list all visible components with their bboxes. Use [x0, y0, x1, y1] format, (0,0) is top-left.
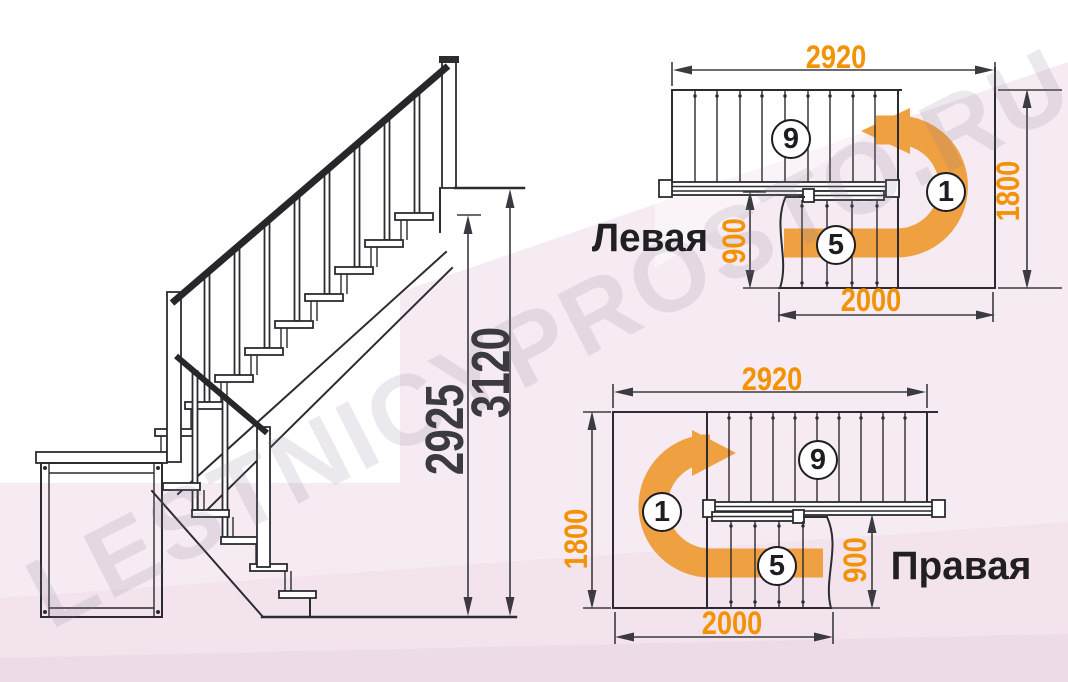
plan-right-badge-upper-flight: 9 [798, 440, 838, 480]
plan-right-dim-lower-width: 900 [839, 537, 871, 582]
plan-left-dim-lower-width: 900 [718, 218, 750, 263]
staircase-diagram: LESTNICYPROSTO.RU 2925 3120 Левая 2920 1… [0, 0, 1068, 682]
plan-left-dim-lower-length: 2000 [841, 284, 902, 316]
plan-right-badge-lower-flight: 5 [757, 546, 797, 586]
dim-label-3120: 3120 [464, 328, 518, 419]
plan-right-title: Правая [891, 546, 1032, 586]
plan-left-title: Левая [592, 218, 708, 258]
plan-right-badge-landing: 1 [642, 492, 682, 532]
plan-left-dim-depth: 1800 [992, 161, 1024, 222]
plan-right-dim-lower-length: 2000 [702, 607, 763, 639]
plan-left-badge-upper-flight: 9 [771, 119, 811, 159]
plan-right-dim-width: 2920 [742, 363, 803, 395]
plan-left-badge-lower-flight: 5 [816, 225, 856, 265]
plan-left-badge-landing: 1 [926, 172, 966, 212]
plan-left-dim-width: 2920 [806, 41, 867, 73]
plan-right-dim-depth: 1800 [560, 509, 592, 570]
